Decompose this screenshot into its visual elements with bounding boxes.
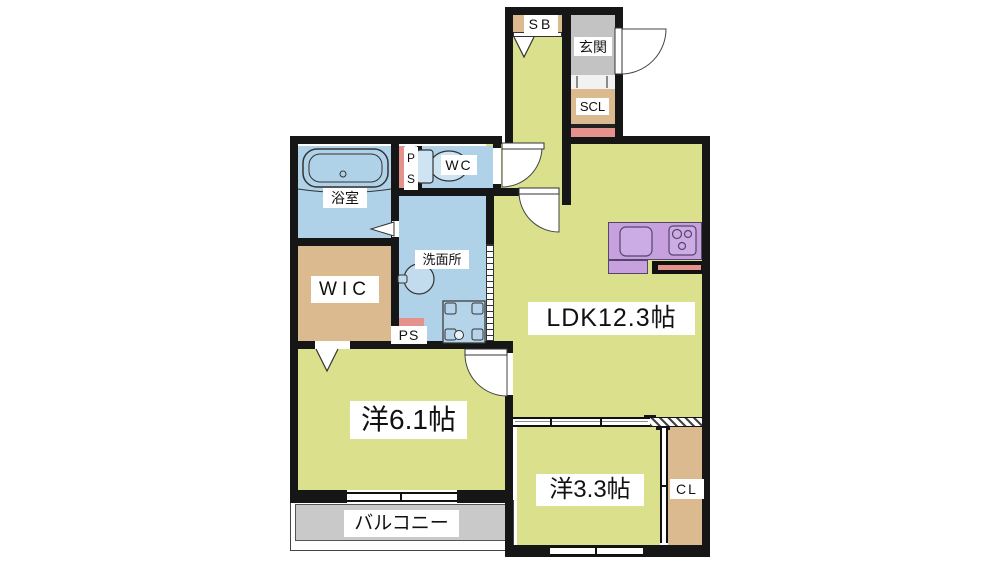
ps-upper-p: P xyxy=(407,152,415,164)
cl-label: CL xyxy=(670,479,704,499)
entrance-door-arc xyxy=(615,28,666,74)
bathroom-label: 浴室 xyxy=(323,188,367,208)
bedroom61-door-arc xyxy=(465,349,507,396)
bedroom61-label: 洋6.1帖 xyxy=(350,401,467,439)
sb-fold-mark xyxy=(514,37,534,57)
bath-door-wedge xyxy=(371,222,394,236)
wc-door-arc xyxy=(502,143,544,187)
ldk-label: LDK12.3帖 xyxy=(528,302,695,335)
ps-upper-label: P S xyxy=(404,147,418,190)
scl-label: SCL xyxy=(576,98,609,115)
sb-label: SB xyxy=(524,15,558,33)
washer-pan-icon xyxy=(443,301,485,343)
genkan-label: 玄関 xyxy=(574,37,612,56)
floor-plan: SB 玄関 SCL P S WC 浴室 洗面所 WIC PS LDK12.3帖 … xyxy=(0,0,1000,562)
wc-label: WC xyxy=(441,155,477,175)
ps-upper-s: S xyxy=(407,173,415,185)
fixtures-and-doors-layer xyxy=(0,0,1000,562)
hall-ldk-door-arc xyxy=(519,188,559,232)
washroom-label: 洗面所 xyxy=(415,250,469,269)
wic-fold-mark xyxy=(316,349,338,371)
bedroom33-label: 洋3.3帖 xyxy=(536,474,644,506)
bathtub-icon xyxy=(298,149,391,193)
wic-label: WIC xyxy=(311,276,379,303)
kitchen-sink-icon xyxy=(620,227,652,256)
stove-icon xyxy=(669,226,696,255)
ps-lower-label: PS xyxy=(391,326,427,344)
balcony-label: バルコニー xyxy=(344,510,459,537)
